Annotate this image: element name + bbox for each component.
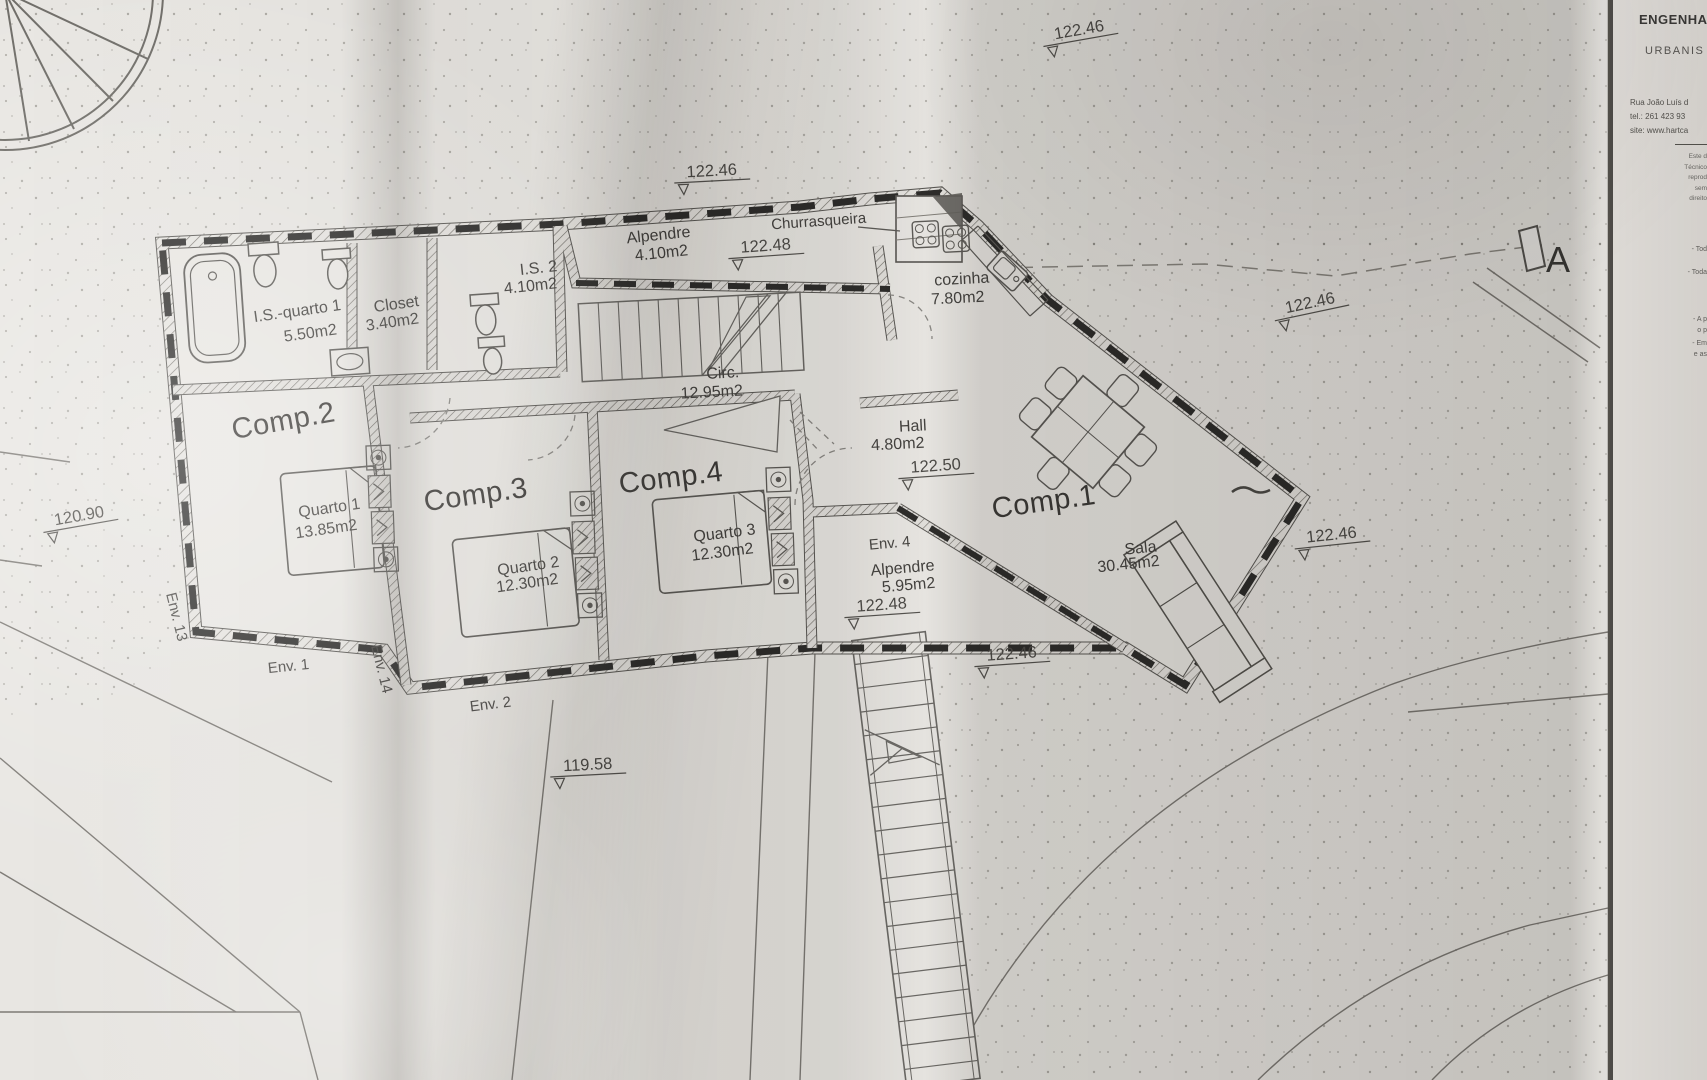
svg-text:122.46: 122.46 [686,161,737,182]
section-marker-letter: A [1546,239,1570,280]
bathtub-icon [183,252,246,364]
title-block: ENGENHA URBANIS Rua João Luís d tel.: 26… [1610,0,1707,1080]
note-line: e as [1613,351,1707,358]
elevation-marker: 119.58 [549,754,627,789]
sink-icon [330,347,370,376]
tel-line: tel.: 261 423 93 [1630,110,1688,124]
room-label-hall: Hall [899,417,927,435]
floor-plan-drawing: I.S.-quarto 1 5.50m2 Closet 3.40m2 I.S. … [0,0,1707,1080]
note-line: - A p [1613,316,1707,323]
company-name: ENGENHA [1639,12,1707,27]
svg-text:122.48: 122.48 [740,235,792,256]
env-label-2: Env. 2 [469,694,512,716]
company-subtitle: URBANIS [1645,45,1704,57]
room-label-circ: Circ. [706,364,740,383]
env-label-4: Env. 4 [868,533,911,554]
fine-print: Este d Técnico reprod sem direito [1643,152,1707,205]
room-area-cozinha: 7.80m2 [931,289,985,309]
note-line: o p [1613,327,1707,334]
address-line: Rua João Luís d [1630,96,1688,110]
site-line: site: www.hartca [1630,124,1688,138]
svg-text:122.50: 122.50 [910,455,962,476]
room-area-hall: 4.80m2 [871,435,925,455]
svg-text:122.46: 122.46 [986,643,1038,664]
floor-plan-photo: I.S.-quarto 1 5.50m2 Closet 3.40m2 I.S. … [0,0,1707,1080]
note-line: - Tod [1613,246,1707,253]
svg-text:119.58: 119.58 [563,755,613,776]
company-address: Rua João Luís d tel.: 261 423 93 site: w… [1630,96,1688,138]
room-label-cozinha: cozinha [934,270,990,290]
env-label-1: Env. 1 [267,656,310,677]
note-line: - Em [1613,340,1707,347]
title-block-rule [1675,144,1707,145]
room-area-circ: 12.95m2 [680,382,743,402]
note-line: - Toda [1613,269,1707,276]
svg-text:122.48: 122.48 [856,594,908,615]
